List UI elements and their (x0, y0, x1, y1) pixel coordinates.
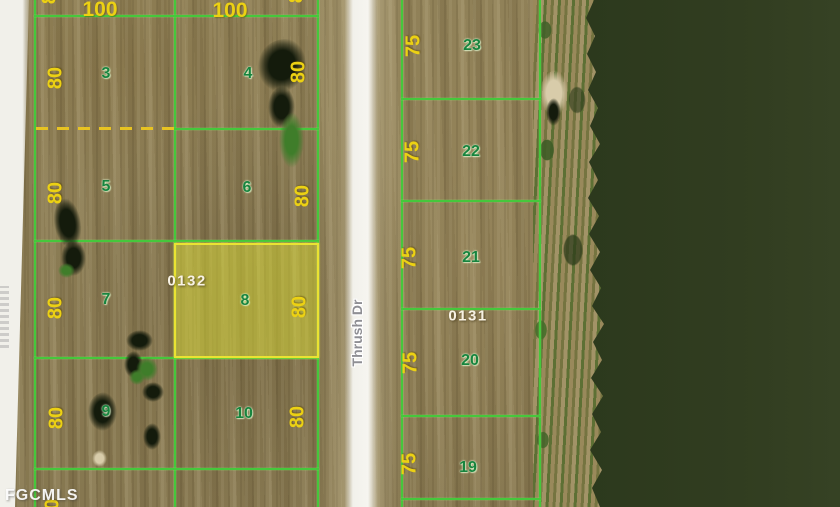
lot-number-8: 8 (241, 292, 250, 310)
lot-number-5: 5 (102, 178, 111, 196)
dimension-label: 75 (400, 352, 423, 374)
dimension-label: 75 (399, 247, 422, 269)
lot-boundary-line (401, 200, 541, 202)
tree-blob (279, 112, 304, 168)
lot-boundary-line (401, 415, 541, 417)
lot-boundary-line (34, 15, 319, 17)
lot-number-23: 23 (463, 37, 481, 55)
lot-boundary-line (34, 468, 319, 470)
dimension-label: 80 (45, 67, 68, 89)
tree-blob (143, 423, 161, 450)
dimension-label: 80 (288, 61, 311, 83)
tree-blob (142, 382, 164, 402)
block-id-0131: 0131 (448, 308, 487, 325)
dimension-label: 75 (399, 453, 422, 475)
cutoff-road-label (0, 286, 9, 348)
dimension-label: 80 (45, 297, 68, 319)
lot-number-7: 7 (102, 291, 111, 309)
dimension-label: 80 (45, 182, 68, 204)
lot-number-9: 9 (102, 403, 111, 421)
lot-number-4: 4 (244, 65, 253, 83)
dimension-label: 80 (289, 296, 312, 318)
dimension-label: 80 (292, 185, 315, 207)
dimension-label: 100 (82, 0, 117, 22)
tree-blob (58, 263, 75, 278)
mls-watermark: FGCMLS (5, 487, 79, 505)
road-name-label: Thrush Dr (349, 300, 365, 367)
lot-number-10: 10 (235, 405, 253, 423)
tree-blob (126, 330, 153, 351)
lot-boundary-line (401, 98, 541, 100)
dimension-label: 75 (402, 141, 425, 163)
lot-boundary-line (401, 498, 541, 500)
tree-blob (546, 98, 561, 126)
lot-number-19: 19 (459, 459, 477, 477)
thrush-dr-road (344, 0, 378, 507)
lot-boundary-line (539, 0, 541, 507)
lot-number-3: 3 (102, 65, 111, 83)
dimension-label: 100 (212, 0, 247, 23)
water-body (580, 0, 840, 507)
dimension-label-partial: 80 (286, 0, 309, 3)
dimension-label: 80 (287, 406, 310, 428)
dimension-label: 80 (46, 407, 69, 429)
dashed-lot-split-line (36, 127, 175, 130)
lot-number-22: 22 (462, 143, 480, 161)
lot-number-6: 6 (243, 179, 252, 197)
dimension-label-partial: 80 (39, 0, 62, 4)
dimension-label: 75 (403, 35, 426, 57)
lot-number-20: 20 (461, 352, 479, 370)
block-id-0132: 0132 (167, 273, 206, 290)
tree-blob (129, 369, 145, 385)
sand-patch (92, 450, 107, 467)
aerial-parcel-map[interactable]: 100 100 80 80 80 80 80 80 80 80 80 80 80… (0, 0, 840, 507)
lot-boundary-line (34, 0, 36, 507)
lot-number-21: 21 (462, 249, 480, 267)
